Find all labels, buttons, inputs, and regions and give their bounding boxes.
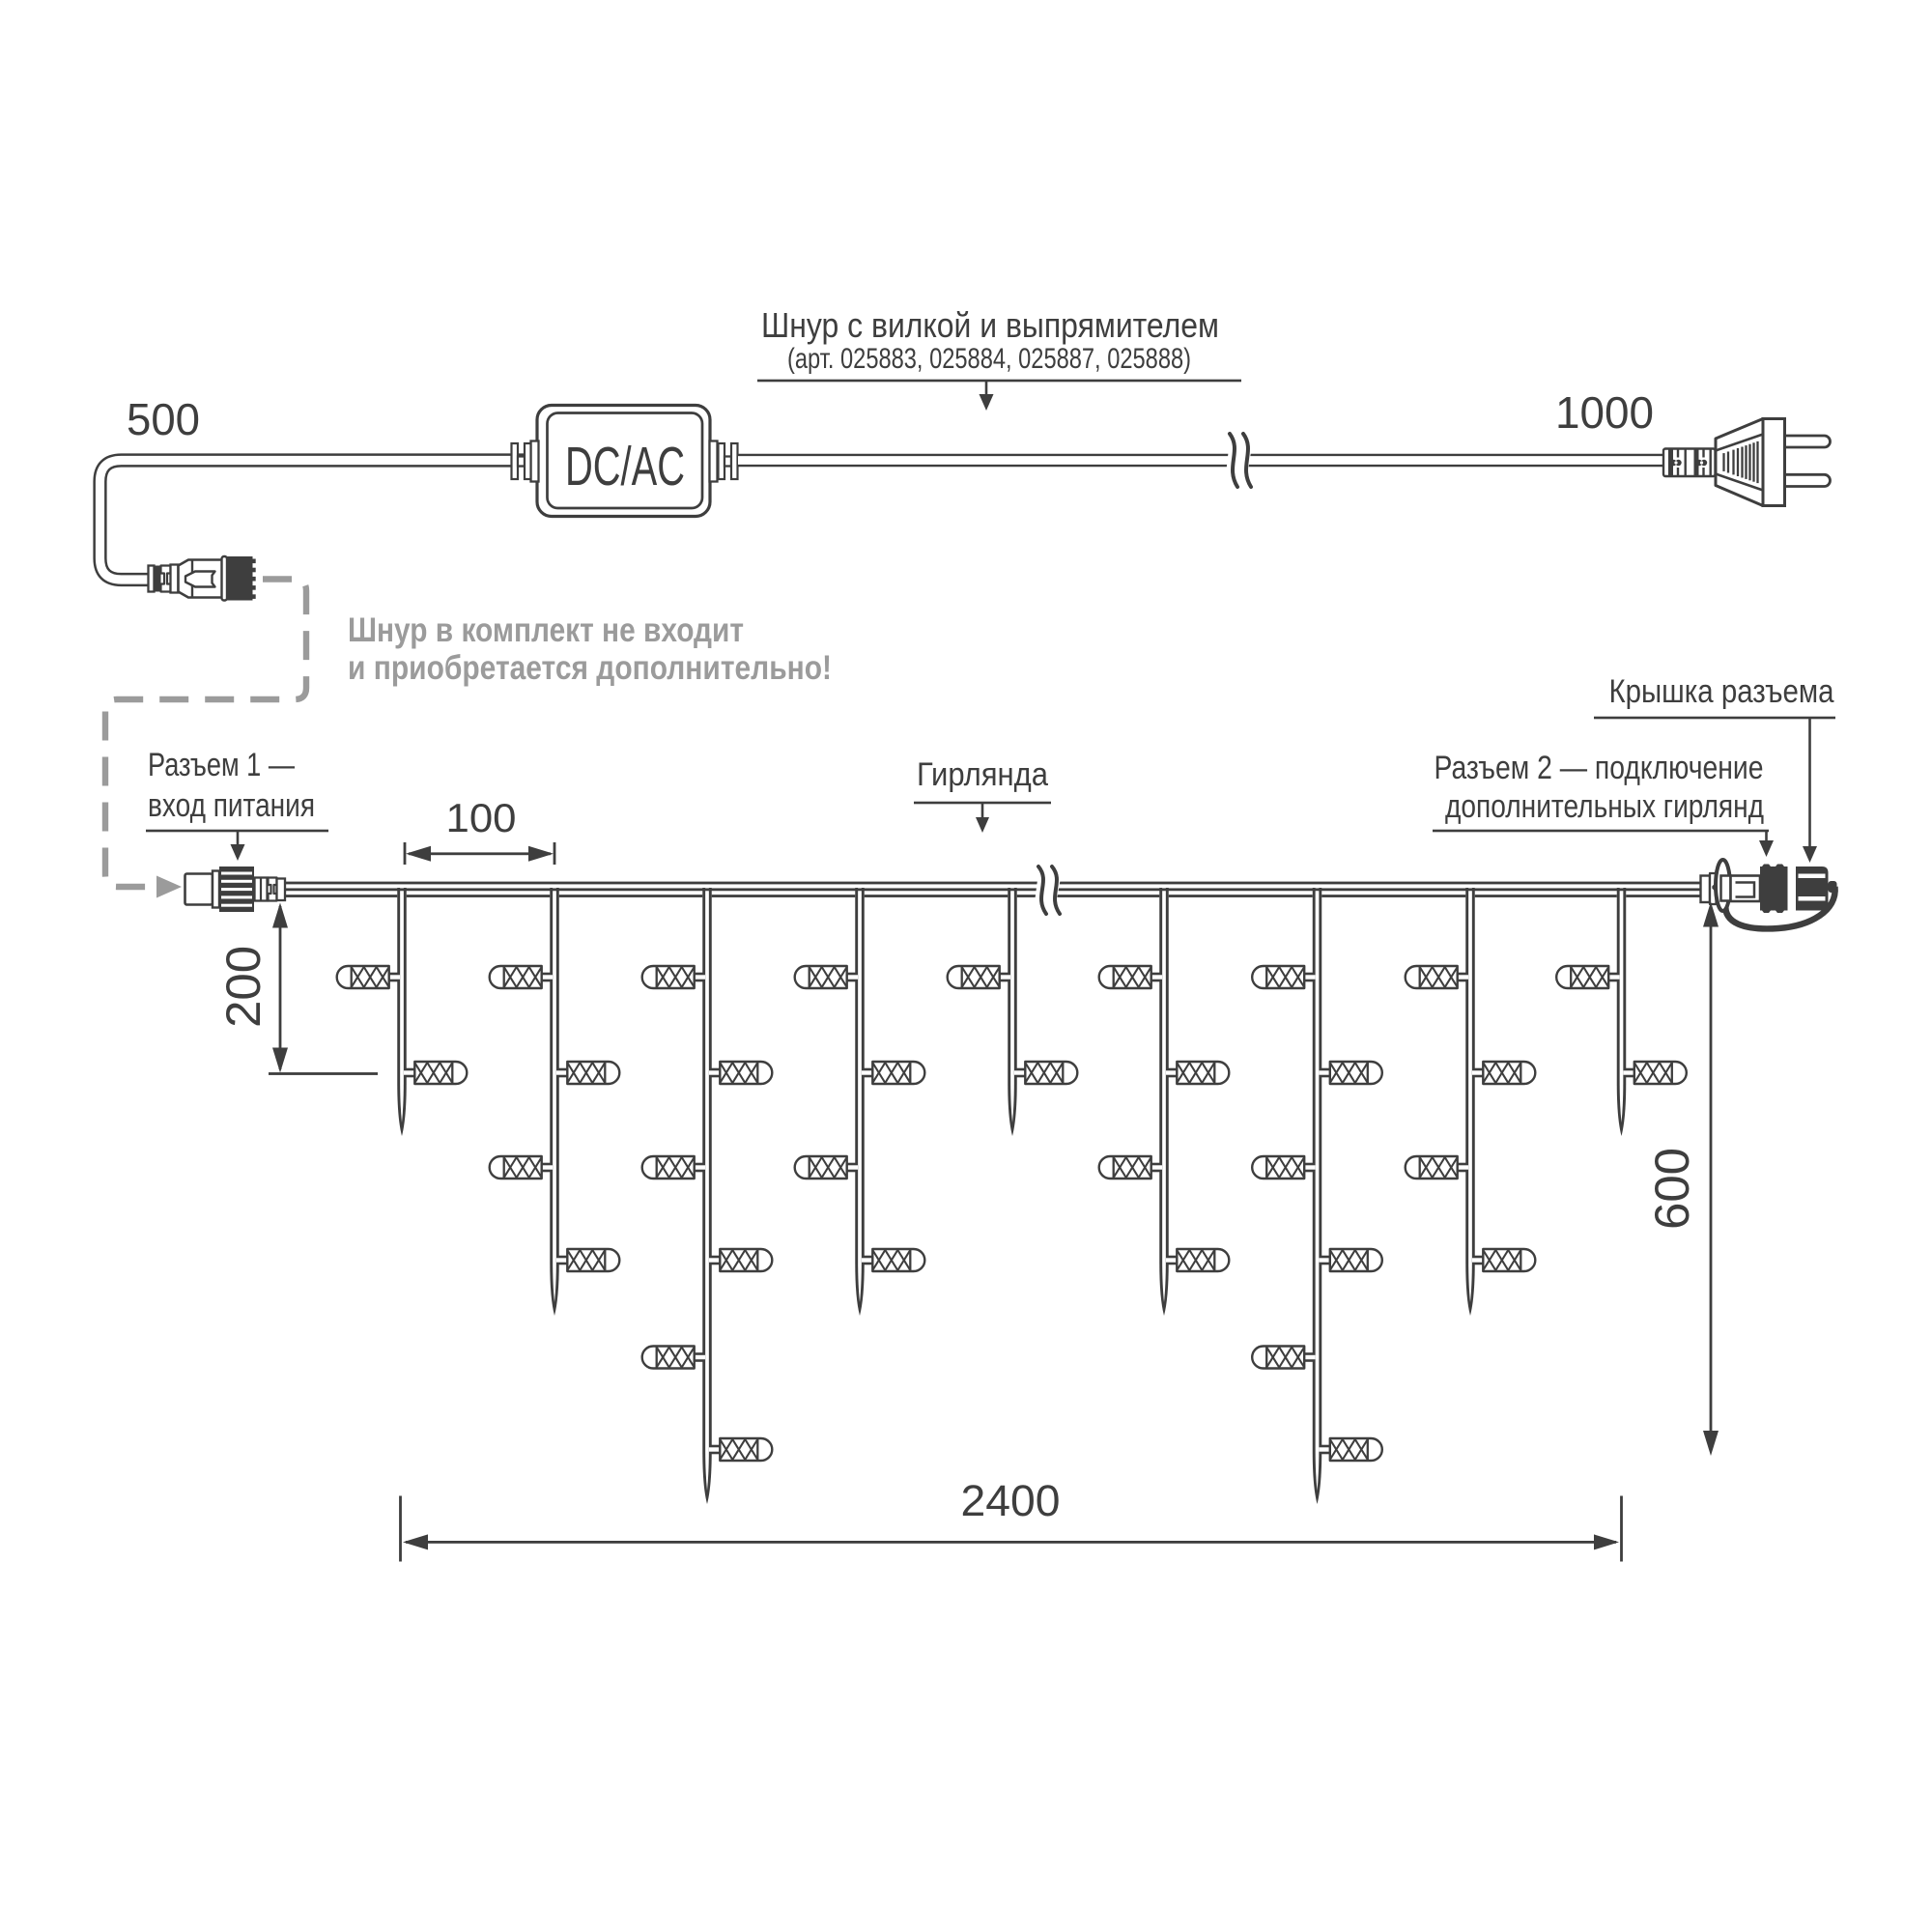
svg-text:2400: 2400 bbox=[961, 1476, 1061, 1525]
svg-text:Шнур в комплект не входит: Шнур в комплект не входит bbox=[348, 611, 744, 649]
svg-text:500: 500 bbox=[127, 394, 200, 444]
svg-text:DC/AC: DC/AC bbox=[565, 436, 685, 497]
svg-text:вход питания: вход питания bbox=[148, 787, 315, 824]
svg-text:Разъем 2 — подключение: Разъем 2 — подключение bbox=[1435, 750, 1764, 786]
svg-text:и приобретается дополнительно!: и приобретается дополнительно! bbox=[348, 649, 832, 687]
svg-text:Гирлянда: Гирлянда bbox=[917, 756, 1048, 793]
svg-text:1000: 1000 bbox=[1555, 387, 1654, 438]
svg-text:Разъем 1 —: Разъем 1 — bbox=[148, 747, 295, 783]
svg-text:600: 600 bbox=[1645, 1148, 1699, 1230]
svg-text:Шнур с вилкой и выпрямителем: Шнур с вилкой и выпрямителем bbox=[761, 305, 1219, 345]
svg-text:100: 100 bbox=[446, 795, 517, 840]
svg-text:200: 200 bbox=[216, 946, 270, 1028]
svg-text:дополнительных гирлянд: дополнительных гирлянд bbox=[1445, 788, 1764, 825]
svg-text:(арт. 025883, 025884, 025887,: (арт. 025883, 025884, 025887, 025888) bbox=[787, 343, 1191, 375]
svg-text:Крышка разъема: Крышка разъема bbox=[1609, 673, 1834, 710]
